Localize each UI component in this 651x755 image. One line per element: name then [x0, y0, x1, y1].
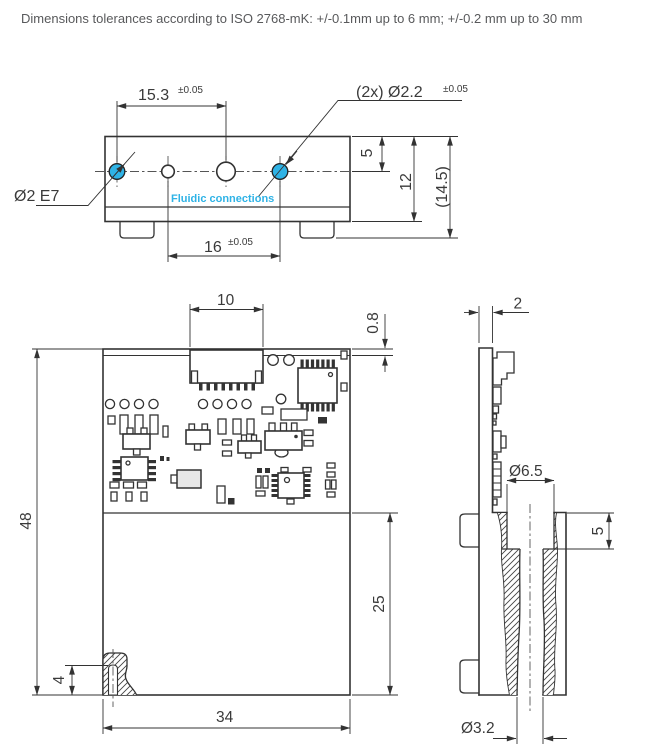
counterbore-edges	[502, 513, 557, 549]
section-tab-top	[460, 514, 479, 547]
fluidic-connections-label: Fluidic connections	[171, 193, 274, 205]
fit-label: Ø2 E7	[14, 188, 59, 205]
dim-board-width: 34	[216, 709, 234, 726]
technical-drawing-page: Dimensions tolerances according to ISO 2…	[0, 0, 651, 755]
dim-total-height: (14.5)	[434, 166, 451, 208]
bore-wall-left-hatch	[498, 513, 521, 695]
top-view-drawing: Ø2 E7 (2x) Ø2.2 ±0.05 15.3 ±0.05 16 ±0.0…	[14, 84, 468, 262]
pcb-sot23-3	[238, 441, 261, 453]
dim-port-spacing-tolerance: ±0.05	[178, 85, 203, 96]
pcb-view-drawing: 10 0.8 48 4 34 25	[18, 292, 398, 734]
dim-bore: Ø3.2	[461, 720, 495, 737]
dim-port-depth: 5	[359, 148, 376, 157]
dim-edge-offset: 0.8	[365, 312, 382, 334]
pcb-relay	[265, 431, 302, 450]
dim-connector-width: 10	[217, 292, 235, 309]
pcb-sot23-2	[186, 430, 210, 444]
dim-15-extension-lines	[117, 101, 226, 162]
bore-wall-right-hatch	[543, 513, 558, 695]
mounting-hole-large	[217, 162, 236, 181]
drawing-canvas: Ø2 E7 (2x) Ø2.2 ±0.05 15.3 ±0.05 16 ±0.0…	[0, 0, 651, 755]
section-view-drawing: 2 Ø6.5 5 Ø3.2	[460, 296, 614, 745]
dim-10-extension-lines	[190, 304, 263, 347]
dim-bottom-spacing-tolerance: ±0.05	[228, 237, 253, 248]
pcb-connector	[190, 350, 263, 383]
pcb-ic-qfn	[278, 473, 304, 498]
hole-callout-tolerance: ±0.05	[443, 84, 468, 95]
section-tab-bottom	[460, 660, 479, 693]
pcb-sot223	[177, 470, 201, 488]
dim-65-extension-lines	[507, 484, 554, 512]
dim-bottom-spacing: 16	[204, 239, 222, 256]
pcb-sot23-1	[123, 434, 150, 449]
dim-lower-section: 25	[371, 595, 388, 612]
section-component-profiles	[493, 352, 514, 505]
hole-callout-label: (2x) Ø2.2	[356, 84, 423, 101]
dim-body-height: 12	[398, 173, 415, 191]
dim-board-height: 48	[18, 512, 35, 529]
pcb-components	[105, 350, 347, 505]
left-foot	[120, 222, 154, 239]
dim-pcb-thickness: 2	[514, 296, 523, 313]
dim-2-extension-lines	[479, 306, 493, 343]
section-connector-profile	[493, 352, 514, 385]
dim-48-extension-lines	[32, 349, 103, 695]
dim-counterbore: Ø6.5	[509, 463, 543, 480]
mounting-hole-small	[162, 165, 175, 178]
dim-counterbore-depth: 5	[590, 527, 607, 536]
hole-callout-arrow	[286, 151, 297, 165]
dim-08-extension-lines	[352, 349, 393, 356]
dim-port-height: 4	[51, 675, 68, 684]
dim-port-spacing: 15.3	[138, 87, 169, 104]
right-foot	[300, 222, 334, 239]
section-pcb-plate	[479, 348, 493, 695]
pcb-ic-qfp	[121, 457, 148, 480]
